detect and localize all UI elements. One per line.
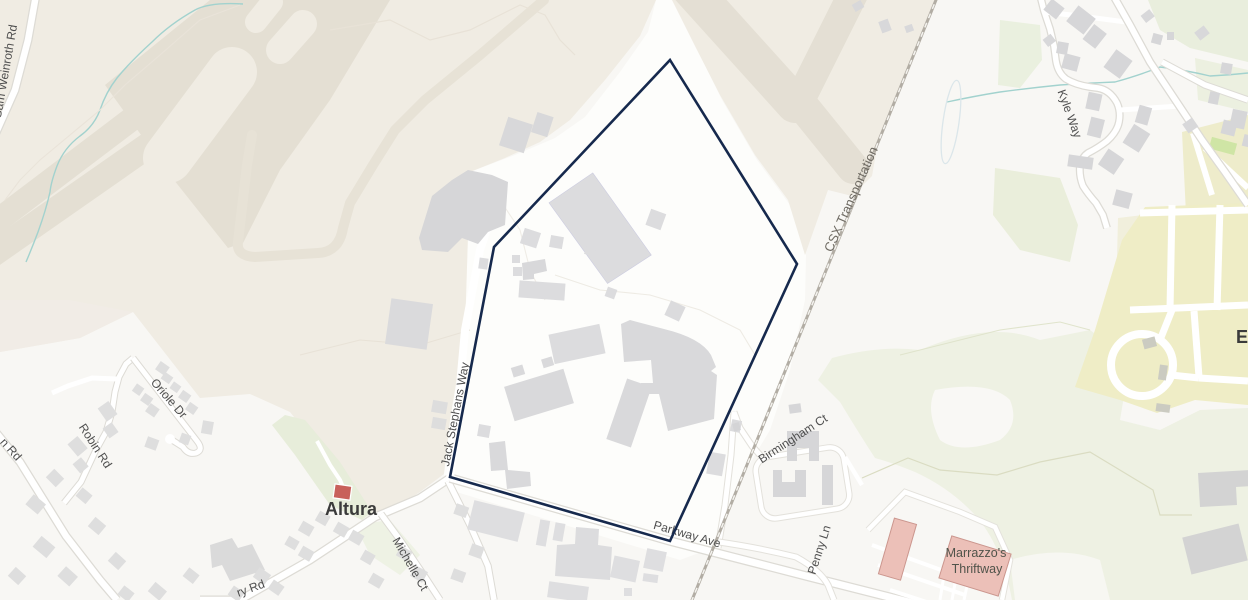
svg-text:Marrazzo's: Marrazzo's	[946, 546, 1007, 560]
svg-text:Thriftway: Thriftway	[952, 562, 1003, 576]
svg-text:E: E	[1236, 327, 1248, 347]
svg-text:Altura: Altura	[325, 499, 378, 519]
